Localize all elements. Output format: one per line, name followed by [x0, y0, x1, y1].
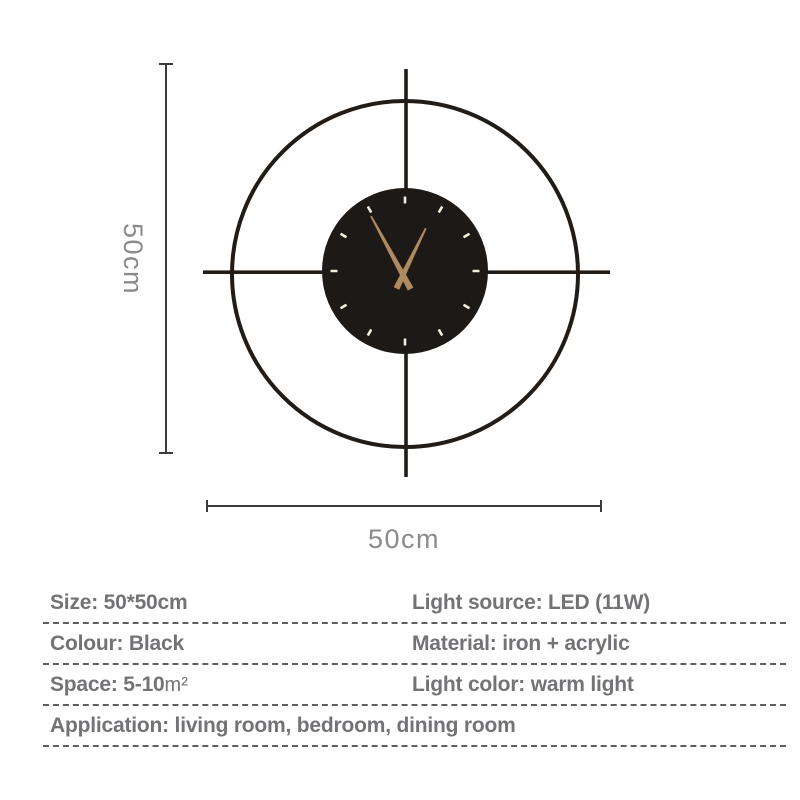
width-dimension-line: [207, 505, 601, 507]
width-dimension-tick-left: [206, 500, 208, 512]
spec-space: Space: 5-10m²: [43, 673, 412, 697]
spec-light-source: Light source: LED (11W): [412, 591, 786, 615]
spec-size: Size: 50*50cm: [43, 591, 412, 615]
spec-table: Size: 50*50cm Light source: LED (11W) Co…: [43, 583, 786, 747]
spec-row: Colour: Black Material: iron + acrylic: [43, 624, 786, 665]
product-page: 50cm 50cm Size: 50*50cm Light source: LE…: [0, 0, 800, 800]
hour-marker: [404, 339, 407, 346]
spec-row: Size: 50*50cm Light source: LED (11W): [43, 583, 786, 624]
width-dimension-tick-right: [600, 500, 602, 512]
height-dimension-tick-bottom: [159, 452, 173, 454]
spec-light-color: Light color: warm light: [412, 673, 786, 697]
height-dimension-line: [165, 64, 167, 454]
spec-space-unit: m²: [165, 674, 188, 696]
spec-colour: Colour: Black: [43, 632, 412, 656]
height-dimension-label: 50cm: [118, 199, 148, 319]
spec-row: Application: living room, bedroom, dinin…: [43, 706, 786, 747]
spec-space-value: Space: 5-10: [50, 673, 165, 696]
hour-marker: [473, 270, 480, 273]
spec-material: Material: iron + acrylic: [412, 632, 786, 656]
hour-marker: [331, 270, 338, 273]
height-dimension-tick-top: [159, 63, 173, 65]
spec-row: Space: 5-10m² Light color: warm light: [43, 665, 786, 706]
width-dimension-label: 50cm: [207, 524, 601, 555]
hour-marker: [404, 197, 407, 204]
spec-application: Application: living room, bedroom, dinin…: [43, 714, 516, 738]
